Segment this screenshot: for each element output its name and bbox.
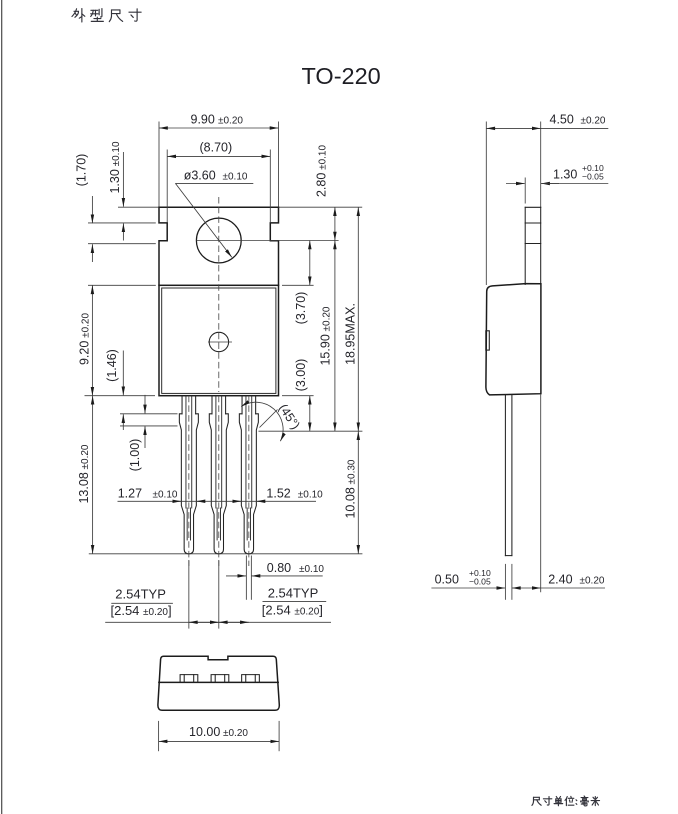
svg-text:±0.20: ±0.20	[218, 115, 243, 126]
svg-text:(3.00): (3.00)	[294, 359, 308, 392]
svg-text:13.08 ±0.20: 13.08 ±0.20	[77, 444, 91, 503]
svg-text:±0.20: ±0.20	[580, 575, 605, 586]
svg-text:±0.10: ±0.10	[298, 489, 323, 500]
svg-text:±0.10: ±0.10	[153, 489, 178, 500]
svg-text:(1.46): (1.46)	[105, 349, 119, 382]
svg-text:9.20 ±0.20: 9.20 ±0.20	[77, 313, 91, 366]
svg-text:(1.00): (1.00)	[128, 439, 142, 472]
svg-text:2.40: 2.40	[548, 572, 572, 586]
svg-text:9.90: 9.90	[191, 112, 215, 126]
svg-text:2.54TYP: 2.54TYP	[115, 587, 166, 602]
svg-text:(8.70): (8.70)	[200, 140, 233, 154]
svg-text:10.00: 10.00	[189, 725, 220, 739]
svg-text:±0.10: ±0.10	[299, 564, 324, 575]
svg-text:1.27: 1.27	[118, 486, 142, 500]
svg-text:±0.20: ±0.20	[581, 115, 606, 126]
svg-text:±0.20: ±0.20	[223, 728, 248, 739]
svg-text:2.80 ±0.10: 2.80 ±0.10	[314, 145, 328, 198]
svg-text:−0.05: −0.05	[469, 577, 491, 587]
svg-text:−0.05: −0.05	[582, 172, 604, 182]
svg-text:0.50: 0.50	[435, 572, 459, 586]
svg-text:1.30 ±0.10: 1.30 ±0.10	[108, 141, 122, 194]
svg-text:(1.70): (1.70)	[74, 154, 88, 187]
svg-text:TO-220: TO-220	[302, 63, 381, 89]
svg-text:4.50: 4.50	[550, 112, 574, 126]
svg-text:10.08 ±0.30: 10.08 ±0.30	[343, 459, 357, 518]
svg-text:(3.70): (3.70)	[294, 292, 308, 325]
svg-text:±0.10: ±0.10	[223, 172, 248, 183]
svg-text:1.52: 1.52	[266, 486, 290, 500]
svg-text:ø3.60: ø3.60	[184, 169, 216, 183]
svg-text:1.30: 1.30	[553, 168, 577, 182]
svg-text:2.54TYP: 2.54TYP	[268, 585, 319, 600]
svg-text:18.95MAX.: 18.95MAX.	[343, 303, 357, 365]
svg-text:0.80: 0.80	[267, 561, 291, 575]
svg-text:15.90 ±0.20: 15.90 ±0.20	[318, 306, 332, 365]
